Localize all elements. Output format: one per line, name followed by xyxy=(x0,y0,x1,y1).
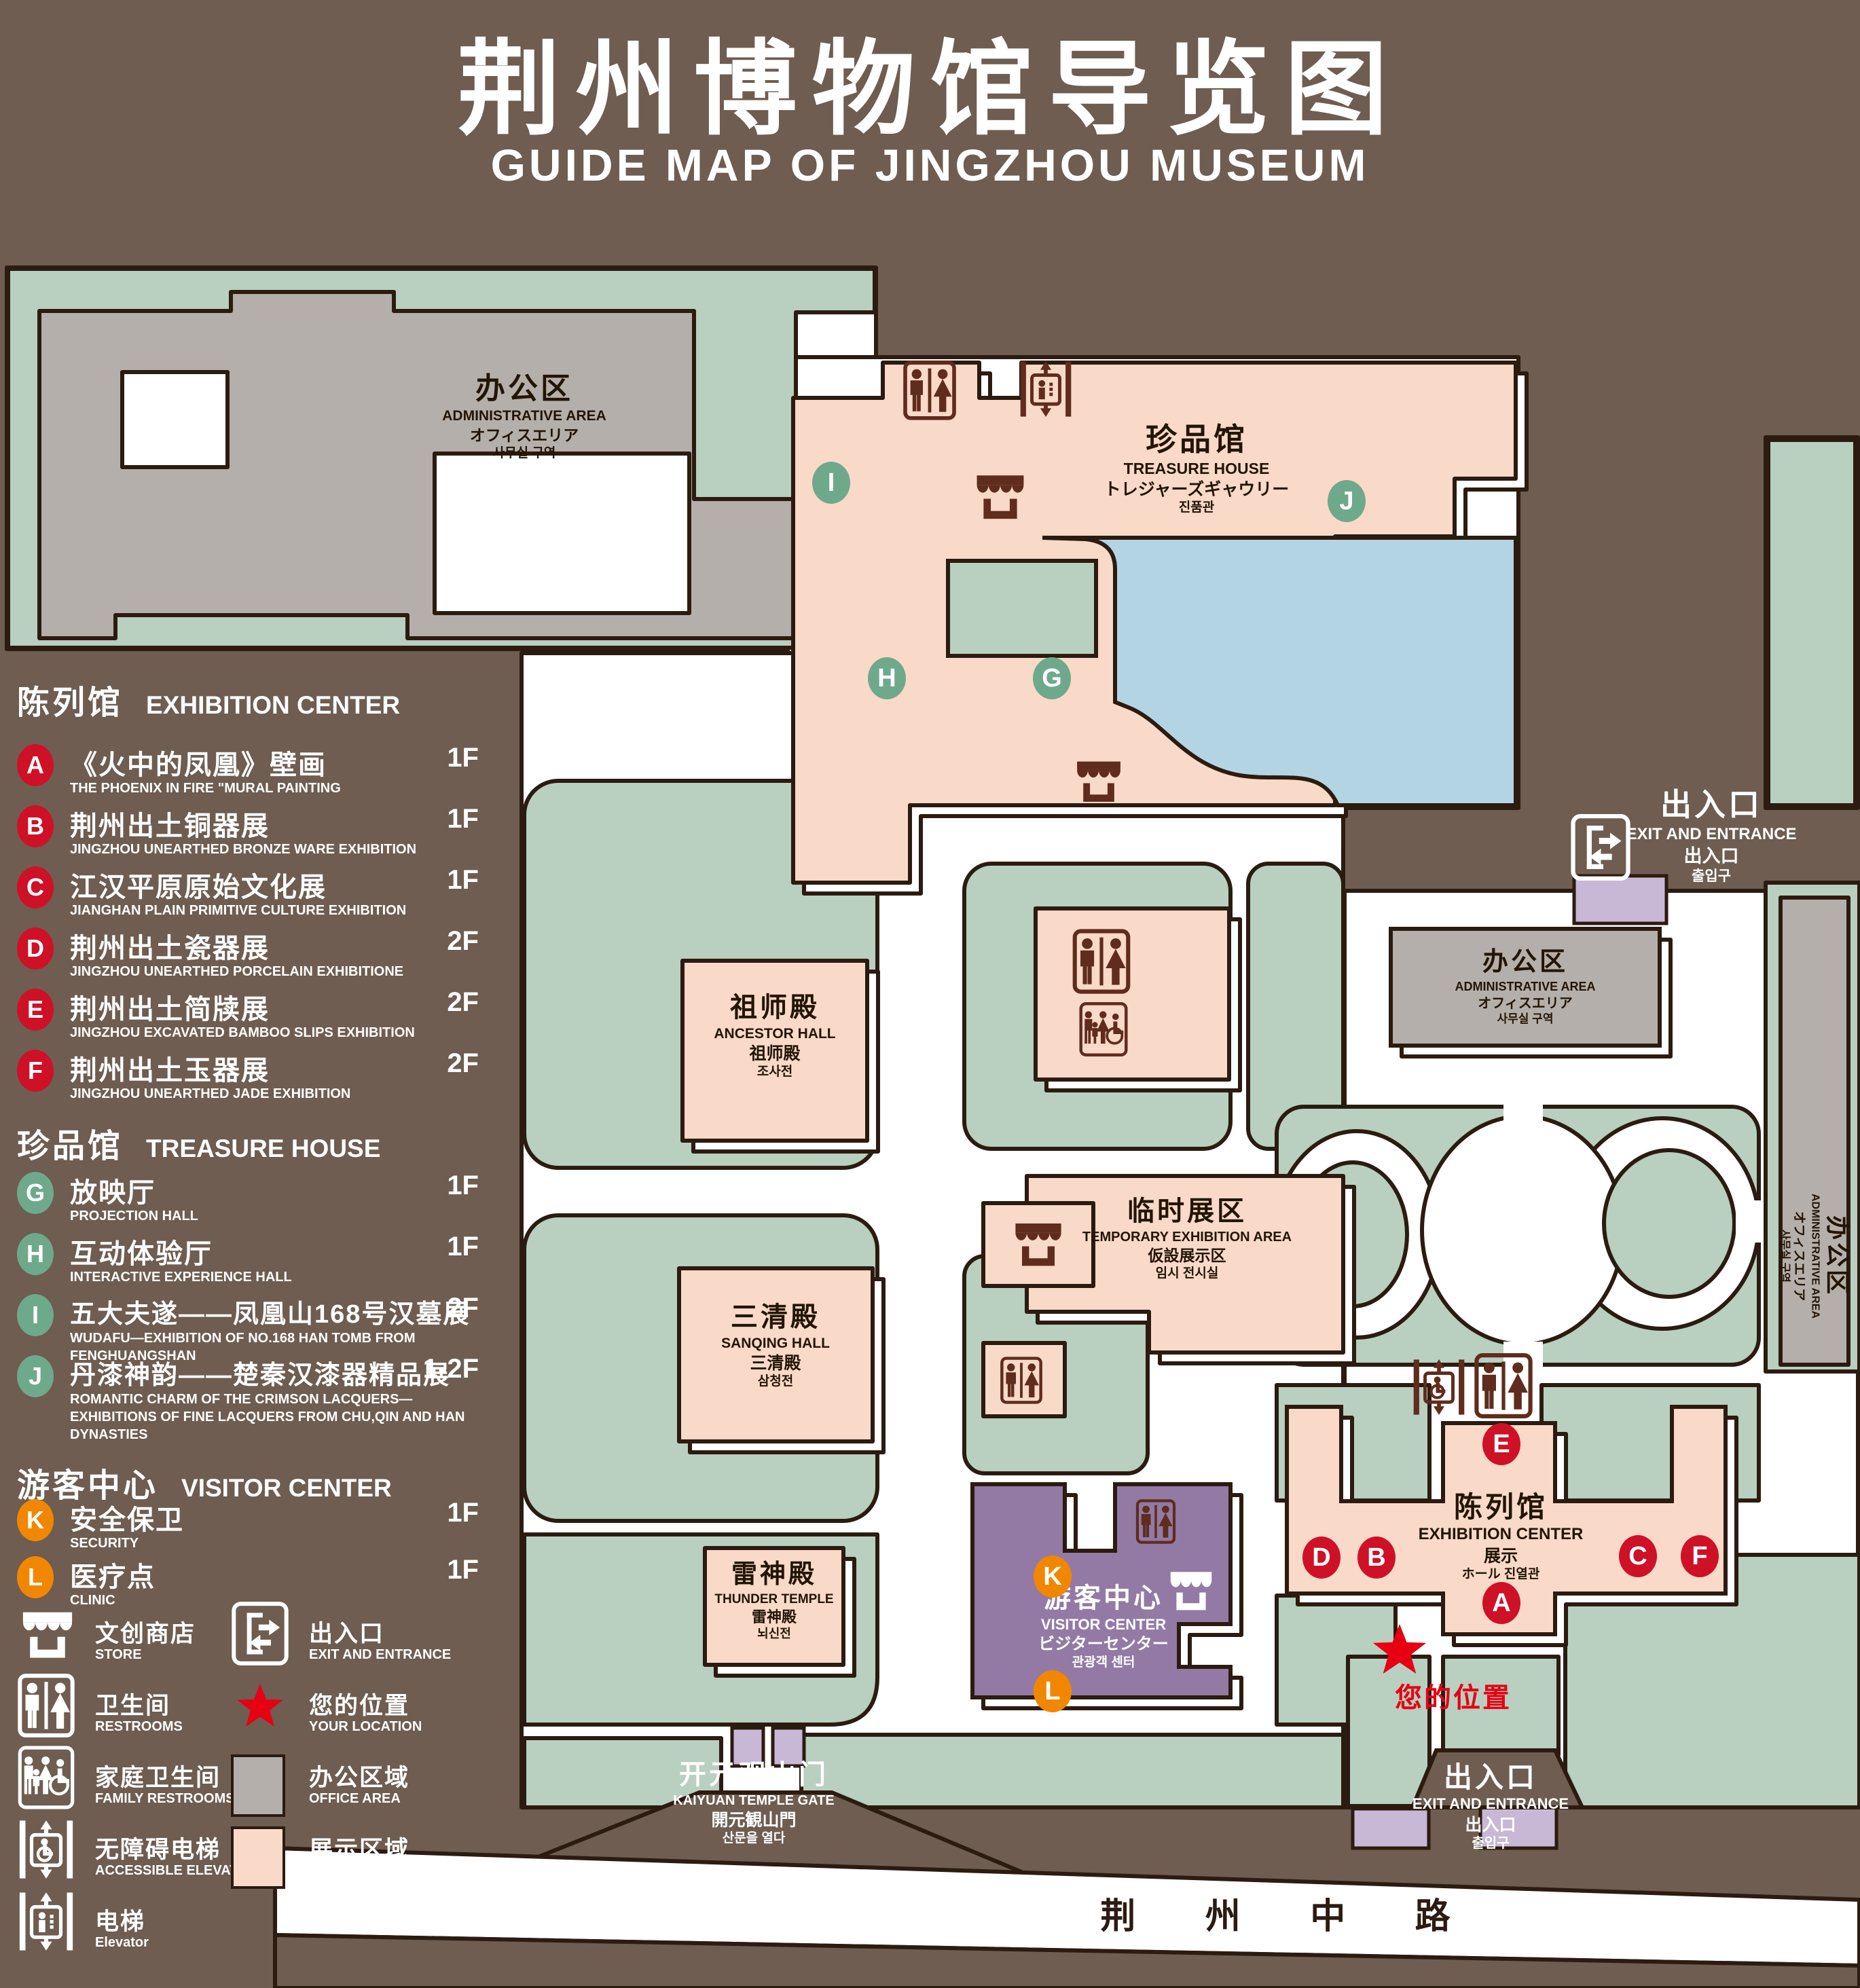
ancestor-hall-label: 祖师殿 ANCESTOR HALL 祖师殿 조사전 xyxy=(714,993,835,1080)
location-star-icon xyxy=(235,1680,285,1730)
store-icon xyxy=(17,1606,78,1665)
restrooms-icon xyxy=(1474,1352,1533,1419)
map-marker-e: E xyxy=(1482,1423,1520,1465)
map-marker-c: C xyxy=(1619,1535,1657,1577)
map-marker-f: F xyxy=(1681,1535,1719,1577)
legend-item-b: B 荆州出土铜器展 JINGZHOU UNEARTHED BRONZE WARE… xyxy=(17,808,479,866)
legend-item-f: F 荆州出土玉器展 JINGZHOU UNEARTHED JADE EXHIBI… xyxy=(17,1052,479,1111)
accessible-elevator-icon xyxy=(17,1817,75,1882)
treasure-house-label: 珍品馆 TREASURE HOUSE トレジャーズギャウリー 진품관 xyxy=(1104,422,1290,515)
legend-item-k: K 安全保卫 SECURITY 1F xyxy=(17,1502,479,1560)
exit-bottom-label: 出入口 EXIT AND ENTRANCE 出入口 출입구 xyxy=(1412,1761,1569,1851)
office-area-swatch xyxy=(231,1754,285,1817)
legend-item-d: D 荆州出土瓷器展 JINGZHOU UNEARTHED PORCELAIN E… xyxy=(17,930,479,989)
guide-map-poster: 荆州博物馆导览图 GUIDE MAP OF JINGZHOU MUSEUM 陈列… xyxy=(0,0,1860,1988)
elevator-icon xyxy=(17,1889,75,1954)
map-marker-g: G xyxy=(1033,657,1071,699)
store-icon xyxy=(1167,1566,1216,1617)
elevator-icon xyxy=(1018,358,1074,420)
temporary-exhibition-label: 临时展区 TEMPORARY EXHIBITION AREA 仮設展示区 임시 … xyxy=(1082,1196,1292,1281)
kaiyuan-gate-label: 开元观山门 KAIYUAN TEMPLE GATE 開元観山門 산문을 열다 xyxy=(673,1760,834,1845)
restrooms-icon xyxy=(1135,1499,1176,1544)
map-marker-j: J xyxy=(1328,480,1366,522)
admin-right-label: 办公区 ADMINISTRATIVE AREA オフィスエリア 사무실 구역 xyxy=(1778,1194,1850,1319)
legend-item-h: H 互动体验厅 INTERACTIVE EXPERIENCE HALL 1F xyxy=(17,1236,479,1294)
accessible-elevator-icon xyxy=(1411,1355,1467,1419)
legend-item-i: I 五大夫遂——凤凰山168号汉墓展 WUDAFU—EXHIBITION OF … xyxy=(17,1297,479,1355)
family-restrooms-icon xyxy=(17,1745,75,1810)
exit-icon xyxy=(1570,813,1631,881)
map-marker-h: H xyxy=(868,657,906,699)
green-bottom-mid xyxy=(801,1735,1343,1807)
map-marker-l: L xyxy=(1034,1670,1072,1712)
road-label: 荆 州 中 路 xyxy=(1100,1888,1480,1938)
your-location-star-icon xyxy=(1370,1619,1429,1678)
restrooms-icon xyxy=(902,359,957,422)
map-marker-k: K xyxy=(1034,1556,1072,1598)
map-marker-b: B xyxy=(1357,1536,1396,1579)
restrooms-icon xyxy=(17,1673,75,1738)
store-icon xyxy=(1073,755,1125,809)
restroom-building xyxy=(1036,908,1229,1080)
page-subtitle: GUIDE MAP OF JINGZHOU MUSEUM xyxy=(491,139,1370,191)
section-heading-treasure-house: 珍品馆 TREASURE HOUSE xyxy=(17,1119,380,1166)
your-location-label: 您的位置 xyxy=(1395,1676,1512,1715)
legend-item-g: G 放映厅 PROJECTION HALL 1F xyxy=(17,1175,479,1233)
legend-item-j: J 丹漆神韵——楚秦汉漆器精品展 ROMANTIC CHARM OF THE C… xyxy=(17,1358,479,1416)
admin-courtyard-1 xyxy=(122,372,227,467)
page-title: 荆州博物馆导览图 xyxy=(458,5,1403,155)
store-icon xyxy=(1011,1217,1065,1274)
family-restrooms-icon xyxy=(1078,1001,1129,1058)
map-marker-i: I xyxy=(812,462,850,504)
restrooms-icon xyxy=(1072,929,1131,994)
exhibition-center-label: 陈列馆 EXHIBITION CENTER 展示 ホール 진열관 xyxy=(1419,1491,1584,1581)
treasure-courtyard xyxy=(948,561,1096,656)
green-right-strip-1 xyxy=(1768,440,1855,805)
thunder-temple-label: 雷神殿 THUNDER TEMPLE 雷神殿 뇌신전 xyxy=(714,1560,833,1641)
legend-item-c: C 江汉平原原始文化展 JIANGHAN PLAIN PRIMITIVE CUL… xyxy=(17,869,479,927)
display-area-swatch xyxy=(231,1826,285,1889)
map-marker-a: A xyxy=(1482,1582,1520,1624)
exit-icon xyxy=(231,1601,289,1666)
admin-courtyard-2 xyxy=(435,454,689,613)
section-heading-exhibition-center: 陈列馆 EXHIBITION CENTER xyxy=(17,676,400,723)
legend-item-a: A 《火中的凤凰》壁画 THE PHOENIX IN FIRE "MURAL P… xyxy=(17,747,479,805)
restrooms-icon xyxy=(1000,1357,1043,1404)
exit-top-label: 出入口 EXIT AND ENTRANCE 出入口 출입구 xyxy=(1626,788,1796,884)
sanqing-hall-label: 三清殿 SANQING HALL 三清殿 삼청전 xyxy=(721,1302,830,1389)
legend-item-e: E 荆州出土简牍展 JINGZHOU EXCAVATED BAMBOO SLIP… xyxy=(17,991,479,1050)
store-icon xyxy=(972,468,1028,527)
admin-mid-label: 办公区 ADMINISTRATIVE AREA オフィスエリア 사무실 구역 xyxy=(1455,948,1596,1025)
map-marker-d: D xyxy=(1302,1536,1341,1579)
admin-topleft-label: 办公区 ADMINISTRATIVE AREA オフィスエリア 사무실 구역 xyxy=(442,372,606,460)
